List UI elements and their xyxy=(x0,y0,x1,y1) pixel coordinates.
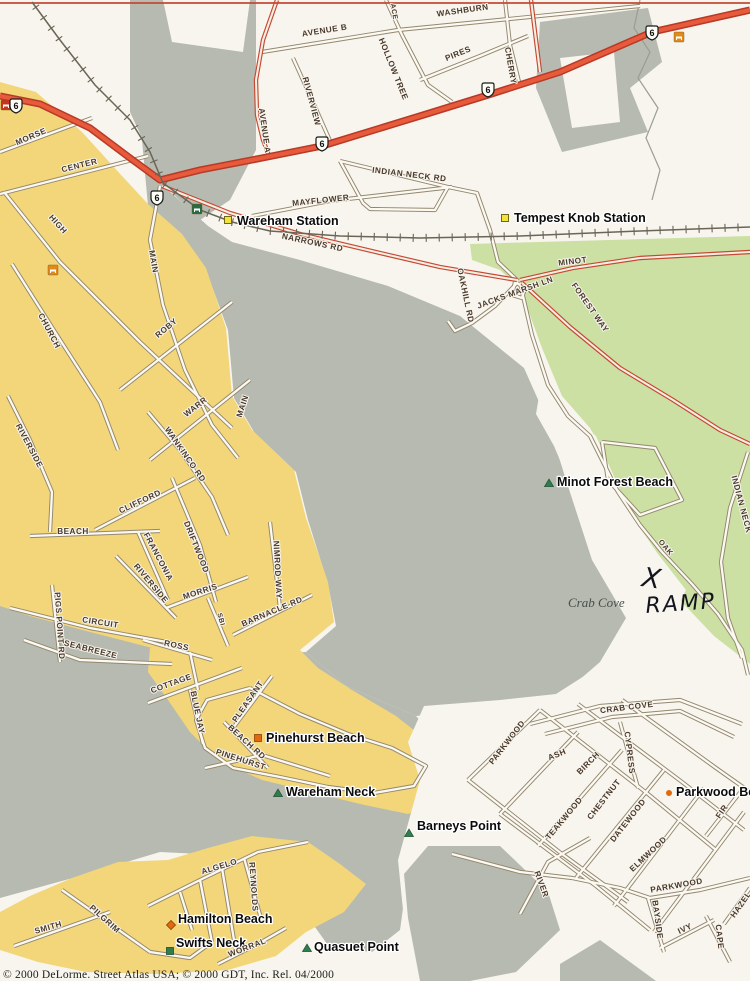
street-label-avenue-b: AVENUE B xyxy=(301,23,348,39)
street-label-riverview: RIVERVIEW xyxy=(301,76,323,127)
route-shield-6: 6 xyxy=(482,83,494,97)
place-label-text: Quasuet Point xyxy=(314,940,400,954)
place-quasuet-point: Quasuet Point xyxy=(303,940,400,954)
place-label-text: Parkwood Beach xyxy=(676,785,750,799)
street-label-mayflower: MAYFLOWER xyxy=(292,193,350,208)
place-minot-forest-beach: Minot Forest Beach xyxy=(545,475,674,489)
place-wareham-station: Wareham Station xyxy=(225,214,339,228)
svg-text:6: 6 xyxy=(13,101,18,111)
place-pinehurst-beach: Pinehurst Beach xyxy=(255,731,365,745)
rest-area-icon xyxy=(674,32,684,42)
place-label-text: Pinehurst Beach xyxy=(266,731,365,745)
picnic-area-icon xyxy=(192,204,202,214)
place-label-text: Tempest Knob Station xyxy=(514,211,646,225)
street-label-washburn: WASHBURN xyxy=(436,2,489,18)
route-shield-6: 6 xyxy=(316,137,328,151)
street-label-oakhill-rd: OAKHILL RD xyxy=(455,267,475,323)
place-label-text: Minot Forest Beach xyxy=(557,475,673,489)
street-label-ace: ACE xyxy=(389,3,399,20)
street-label-beach: BEACH xyxy=(57,527,89,536)
place-label-text: Wareham Neck xyxy=(286,785,375,799)
handwritten-ramp-word: RAMP xyxy=(645,589,717,619)
place-label-text: Wareham Station xyxy=(237,214,339,228)
route-shield-6: 6 xyxy=(151,191,163,205)
route-shield-6: 6 xyxy=(646,26,658,40)
place-wareham-neck: Wareham Neck xyxy=(274,785,376,799)
place-label-text: Hamilton Beach xyxy=(178,912,272,926)
svg-text:6: 6 xyxy=(485,85,490,95)
street-map-svg: Wareham StationTempest Knob StationMinot… xyxy=(0,0,750,981)
water-label-crab-cove: Crab Cove xyxy=(568,595,625,610)
place-tempest-knob-station: Tempest Knob Station xyxy=(502,211,646,225)
street-label-cherry: CHERRY xyxy=(503,46,518,84)
route-shield-6: 6 xyxy=(10,99,22,113)
street-label-hollow-tree: HOLLOW TREE xyxy=(377,37,410,102)
svg-text:6: 6 xyxy=(649,28,654,38)
place-label-text: Barneys Point xyxy=(417,819,502,833)
street-label-indian-neck-rd: INDIAN NECK RD xyxy=(372,165,447,183)
svg-text:6: 6 xyxy=(319,139,324,149)
lodging-icon xyxy=(48,265,58,275)
copyright-text: © 2000 DeLorme. Street Atlas USA; © 2000… xyxy=(3,969,334,981)
map-canvas: Wareham StationTempest Knob StationMinot… xyxy=(0,0,750,981)
place-parkwood-beach: Parkwood Beach xyxy=(666,785,750,799)
svg-text:6: 6 xyxy=(154,193,159,203)
